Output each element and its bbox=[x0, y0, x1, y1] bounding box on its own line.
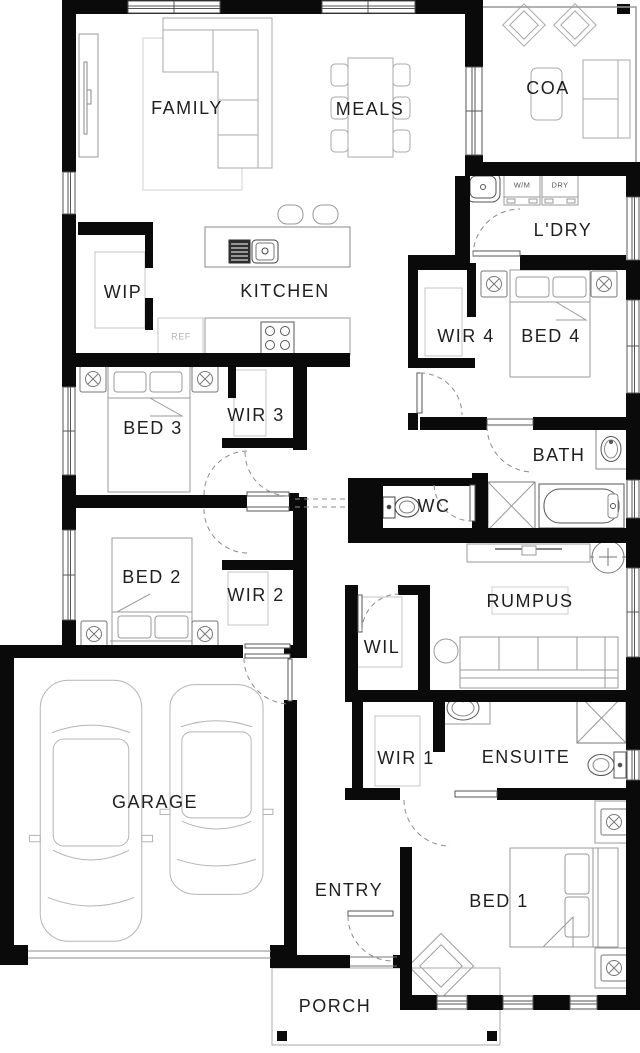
room-label-wir1: WIR 1 bbox=[377, 749, 435, 767]
room-label-rumpus: RUMPUS bbox=[486, 592, 573, 610]
room-label-ldry: L'DRY bbox=[534, 221, 593, 239]
room-label-wir2: WIR 2 bbox=[227, 586, 285, 604]
room-label-bath: BATH bbox=[533, 446, 586, 464]
wc-fixtures bbox=[383, 497, 419, 518]
coa-furniture bbox=[503, 4, 630, 138]
appliance-label-washing-machine: W/M bbox=[514, 181, 531, 189]
room-label-wir4: WIR 4 bbox=[437, 327, 495, 345]
room-label-wil: WIL bbox=[364, 638, 401, 656]
ensuite-fixtures bbox=[375, 693, 626, 786]
room-label-wip: WIP bbox=[104, 283, 143, 301]
room-label-ensuite: ENSUITE bbox=[482, 748, 571, 766]
room-label-porch: PORCH bbox=[299, 997, 372, 1015]
room-label-garage: GARAGE bbox=[112, 793, 198, 811]
appliance-label-dryer: DRY bbox=[552, 181, 569, 189]
room-label-bed4: BED 4 bbox=[521, 327, 581, 345]
floor-plan: FAMILY MEALS COA L'DRY WIP KITCHEN WIR 4… bbox=[0, 0, 640, 1053]
room-label-meals: MEALS bbox=[336, 100, 405, 118]
room-label-wc: WC bbox=[418, 497, 451, 515]
rumpus-furniture bbox=[434, 541, 626, 688]
room-label-bed2: BED 2 bbox=[122, 568, 182, 586]
appliance-label-refrigerator: REF bbox=[171, 333, 191, 342]
room-label-family: FAMILY bbox=[151, 99, 223, 117]
room-label-kitchen: KITCHEN bbox=[240, 282, 330, 300]
room-label-bed1: BED 1 bbox=[469, 892, 529, 910]
room-label-coa: COA bbox=[526, 79, 570, 97]
room-label-entry: ENTRY bbox=[315, 881, 383, 899]
room-label-bed3: BED 3 bbox=[123, 419, 183, 437]
room-label-wir3: WIR 3 bbox=[227, 406, 285, 424]
